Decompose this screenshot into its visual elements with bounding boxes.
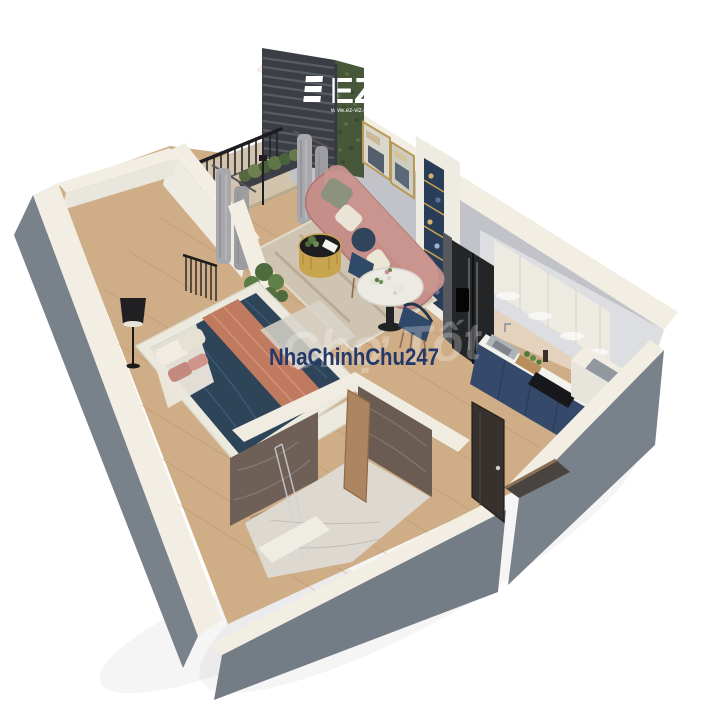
lamp-shade — [120, 298, 146, 324]
primary-watermark: NhaChinhChu247 — [269, 344, 439, 371]
curtain-panel — [216, 168, 231, 264]
bathroom-door — [344, 390, 370, 502]
coffee-table — [299, 234, 341, 278]
dining-table-top — [357, 268, 423, 306]
ez-logo-mark — [303, 76, 323, 102]
floorplan-render: EZ www.ez-viz.com — [0, 0, 705, 705]
door-handle — [496, 466, 500, 470]
bottle — [543, 350, 548, 362]
ice-dispenser — [456, 288, 469, 312]
balcony-lamp-head — [259, 155, 267, 161]
apartment-isometric-scene: EZ www.ez-viz.com — [0, 0, 705, 705]
